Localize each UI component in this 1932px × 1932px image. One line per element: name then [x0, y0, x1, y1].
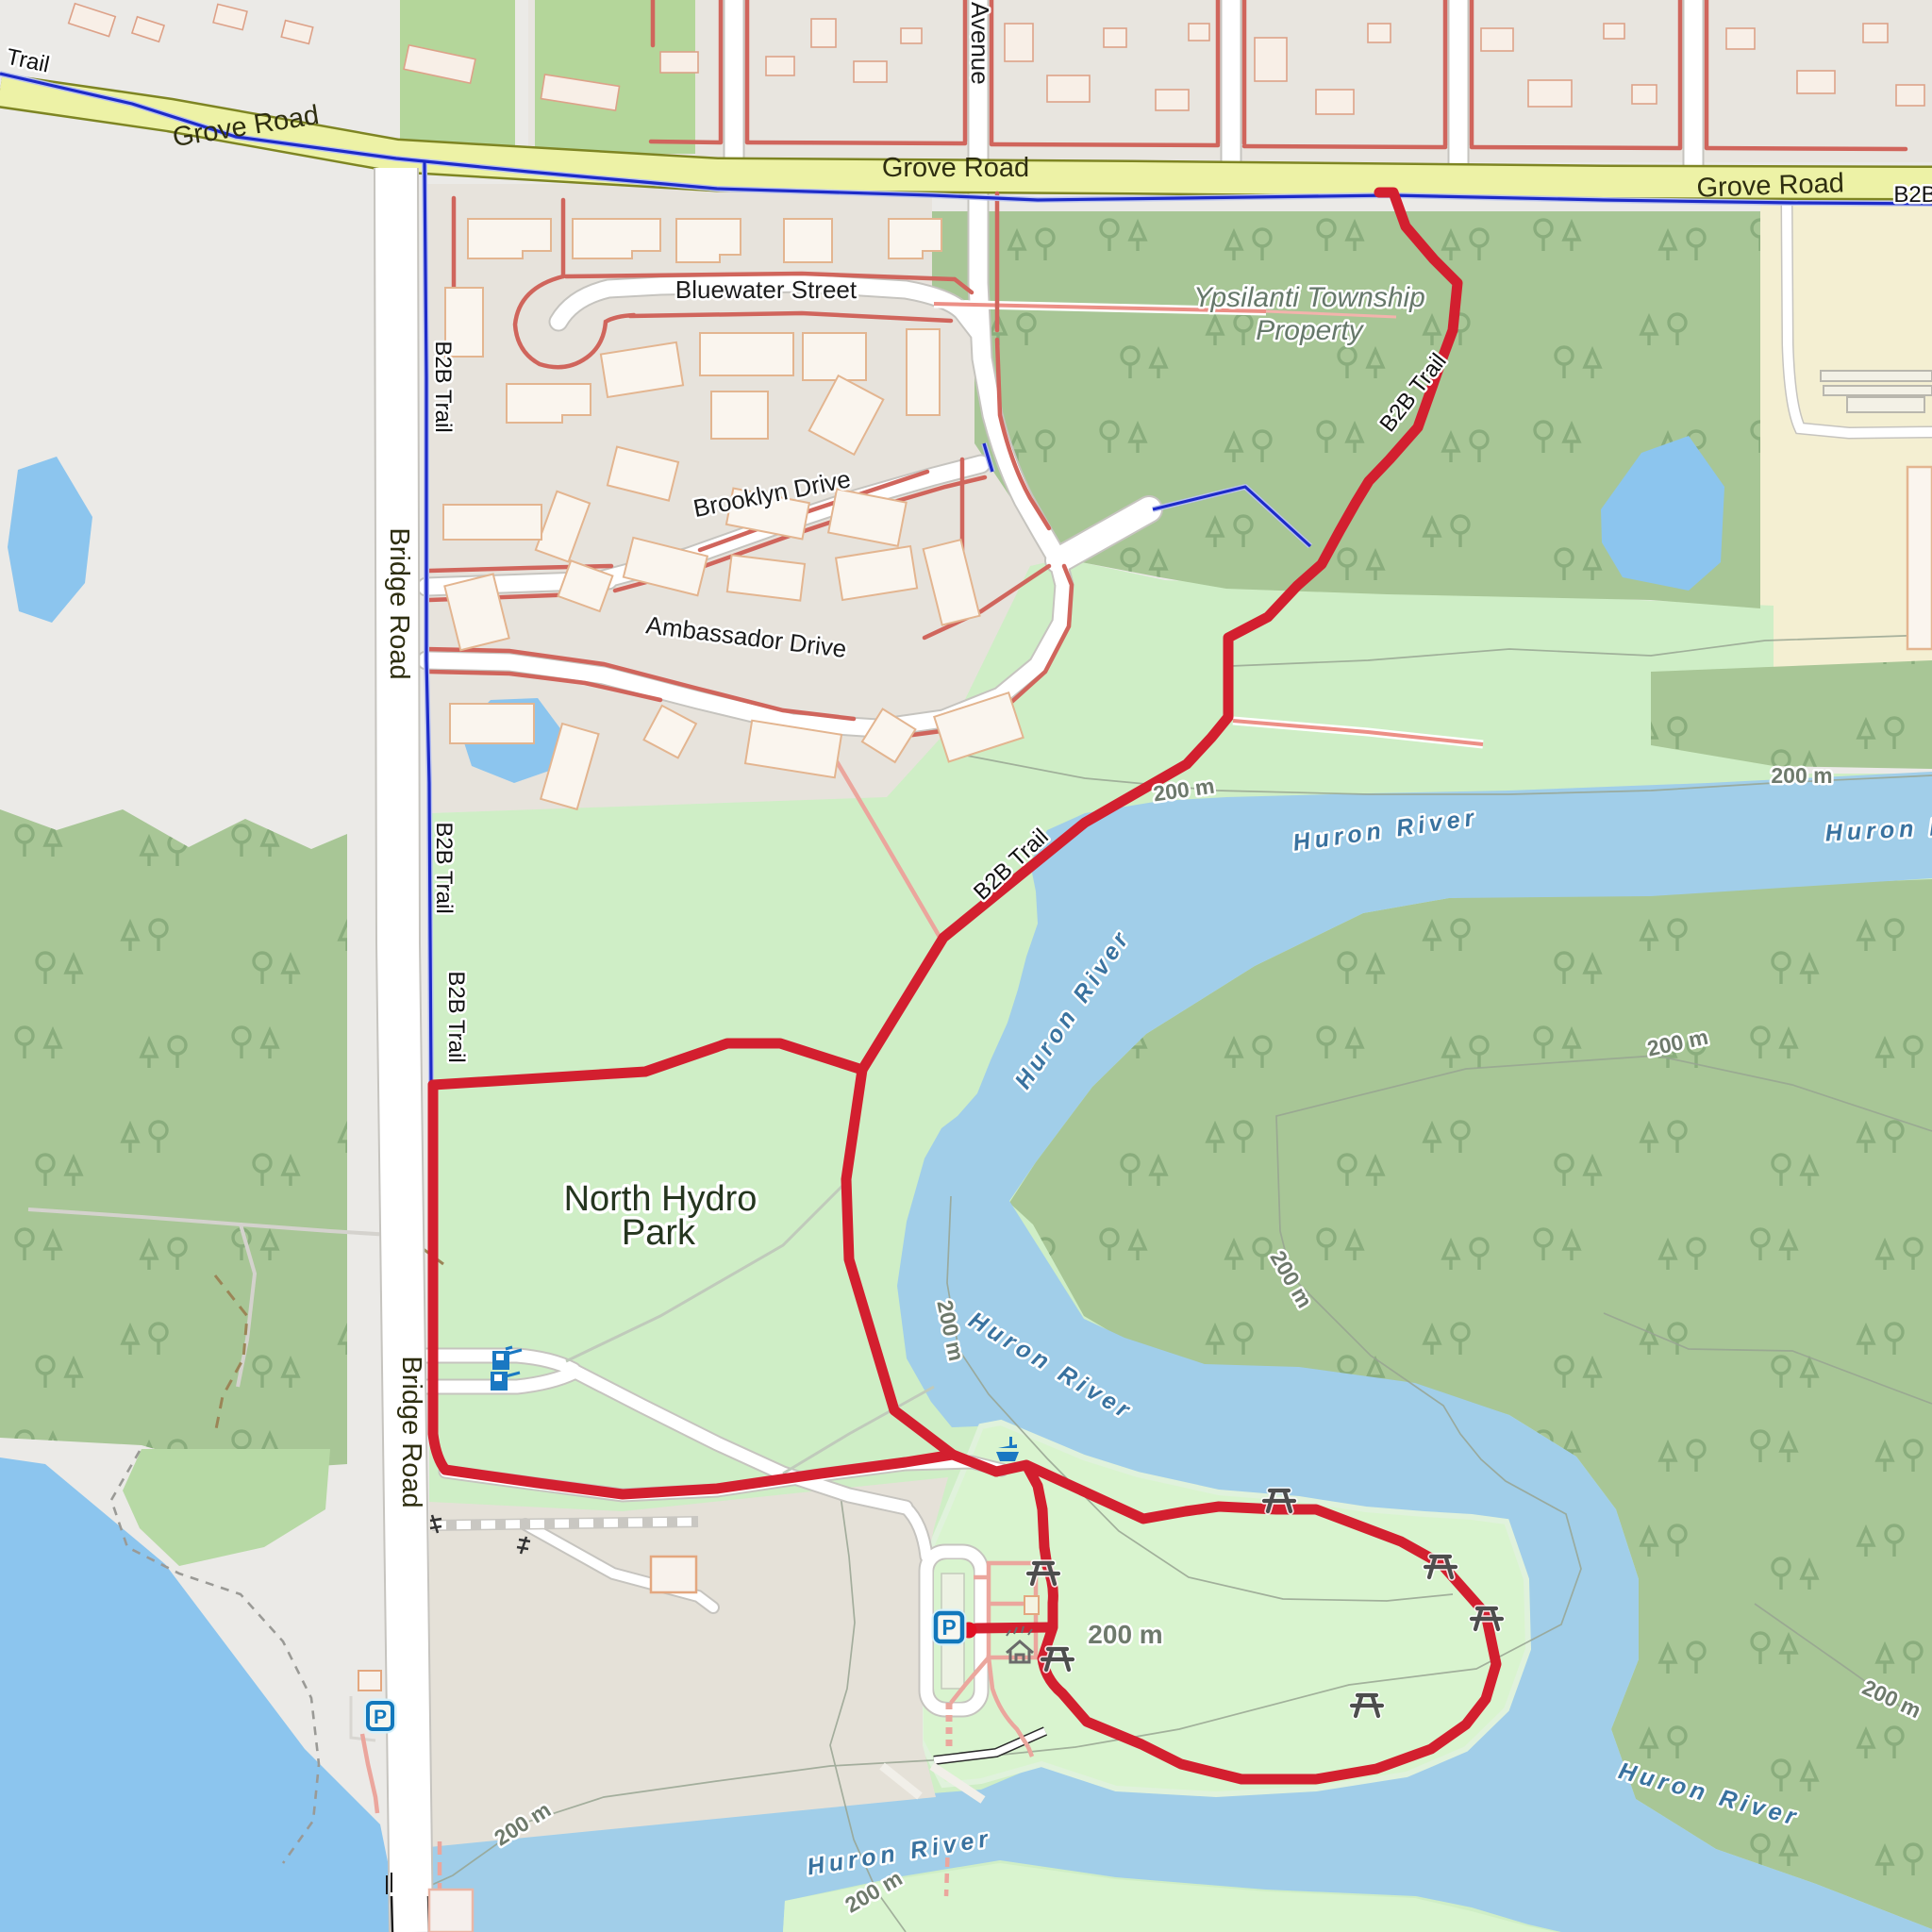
svg-text:Bluewater Street: Bluewater Street	[675, 275, 858, 304]
svg-text:200 m: 200 m	[1088, 1620, 1162, 1649]
svg-text:Grove Road: Grove Road	[1696, 168, 1844, 203]
svg-text:B2B Trail: B2B Trail	[443, 971, 469, 1062]
svg-text:B2B Trail: B2B Trail	[431, 822, 457, 913]
svg-text:P: P	[941, 1615, 956, 1640]
svg-text:Park: Park	[622, 1213, 696, 1253]
svg-text:B2B Trail: B2B Trail	[430, 341, 456, 432]
svg-text:Property: Property	[1256, 315, 1364, 346]
svg-text:Bridge Road: Bridge Road	[384, 527, 414, 679]
svg-text:Avenue: Avenue	[966, 2, 994, 85]
svg-text:B2B: B2B	[1893, 182, 1932, 208]
svg-text:Bridge Road: Bridge Road	[396, 1356, 426, 1507]
svg-text:Ypsilanti Township: Ypsilanti Township	[1193, 282, 1425, 313]
svg-text:Huron R: Huron R	[1824, 814, 1932, 847]
svg-text:200 m: 200 m	[1771, 763, 1832, 788]
svg-text:P: P	[374, 1707, 387, 1728]
svg-text:Grove Road: Grove Road	[882, 153, 1029, 183]
